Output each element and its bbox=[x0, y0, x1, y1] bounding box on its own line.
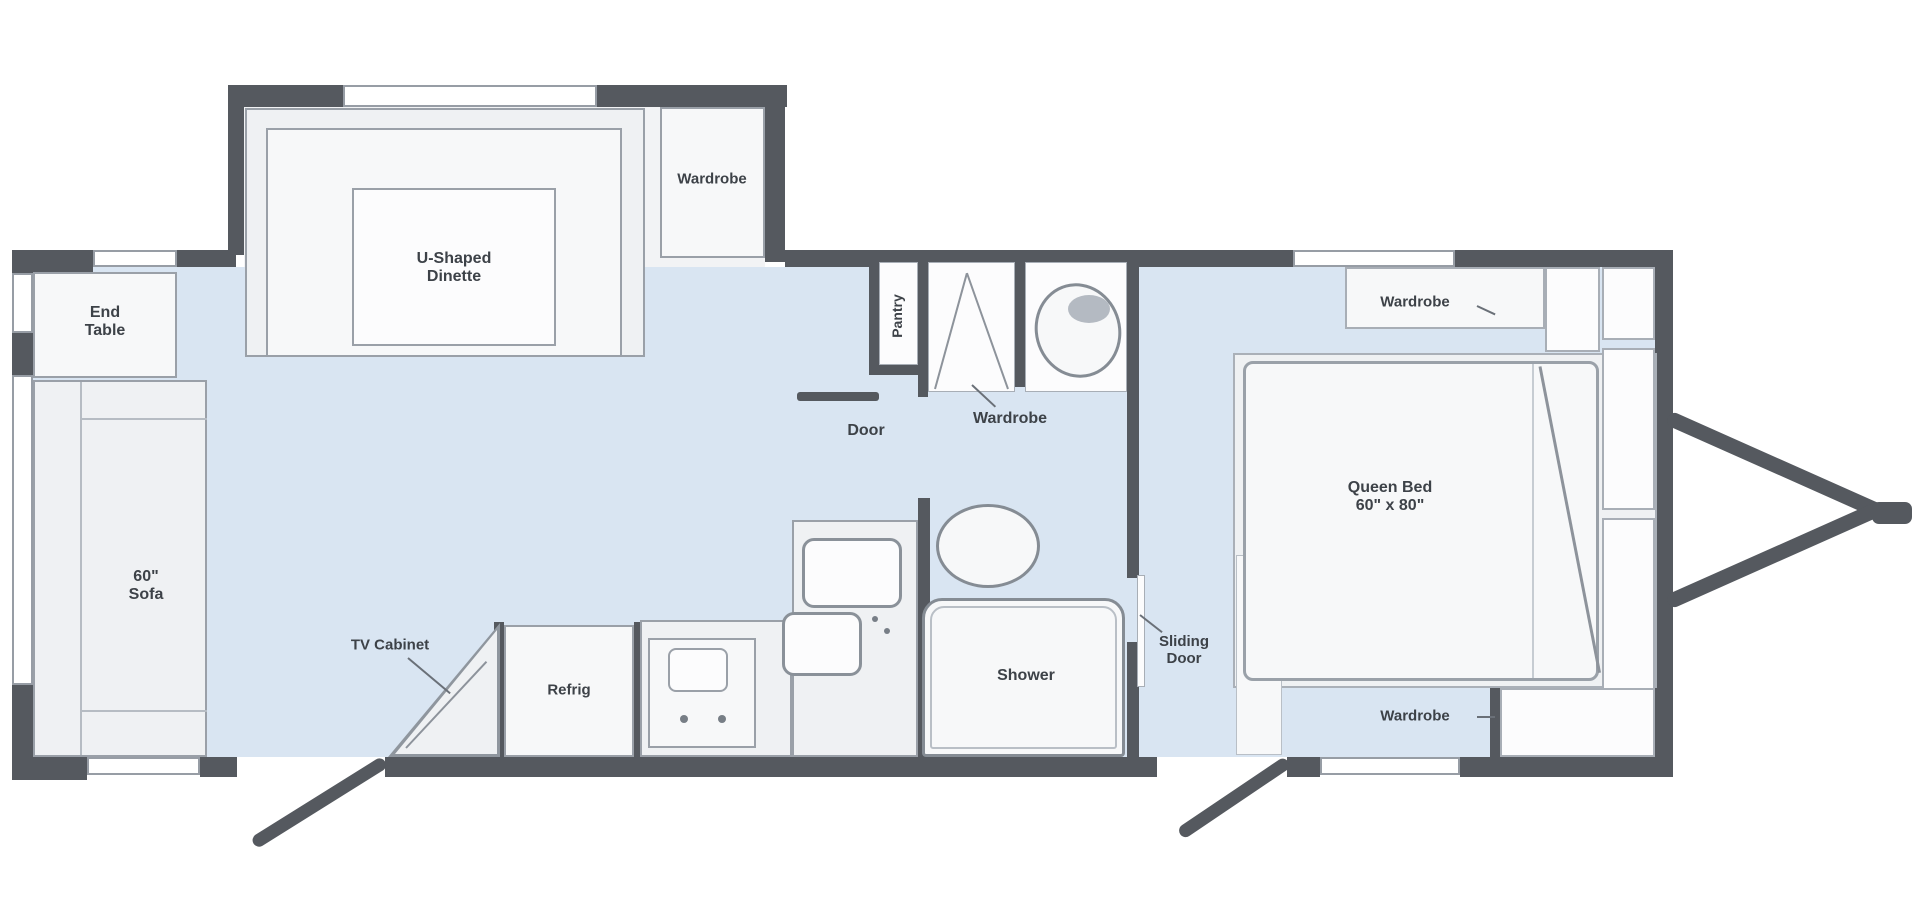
wall-bottom-long bbox=[385, 757, 1157, 777]
wall-top-left-corner bbox=[12, 250, 93, 273]
wall-top-right-corner bbox=[1455, 250, 1673, 267]
wall-bottom-right bbox=[1460, 757, 1673, 777]
entry-door-1 bbox=[250, 756, 388, 849]
bedside-shelf-2 bbox=[1602, 348, 1655, 510]
window-bottom-bed bbox=[1320, 757, 1460, 775]
label-wardrobe-mid: Wardrobe bbox=[973, 410, 1047, 428]
bedside-shelf-1 bbox=[1602, 267, 1655, 340]
kitchen-sink-bowl-lower bbox=[782, 612, 862, 676]
kitchen-faucet-dot-2 bbox=[884, 628, 890, 634]
wall-bottom-door1-jamb bbox=[200, 757, 237, 777]
floor-plan: End Table 60" Sofa U-Shaped Dinette Ward… bbox=[0, 0, 1920, 919]
wall-bath-bedroom-upper bbox=[1127, 255, 1139, 578]
sofa-armrest-top-line bbox=[80, 418, 207, 420]
bedside-cabinet-top bbox=[1545, 267, 1600, 352]
label-sofa: 60" Sofa bbox=[129, 568, 164, 604]
queen-bed-mattress bbox=[1243, 361, 1599, 681]
sofa-back-line bbox=[80, 382, 82, 755]
range-knob-right bbox=[718, 715, 726, 723]
wall-slide-left bbox=[228, 85, 244, 255]
kitchen-sink-bowl-upper bbox=[802, 538, 902, 608]
label-shower: Shower bbox=[997, 667, 1055, 685]
label-pantry: Pantry bbox=[890, 294, 906, 338]
wall-right-end bbox=[1655, 250, 1673, 777]
bath-door-panel bbox=[797, 392, 879, 401]
wall-closet-vanity bbox=[1015, 255, 1025, 387]
sofa-armrest-bottom-line bbox=[80, 710, 207, 712]
wall-bottom-door2-jamb bbox=[1287, 757, 1320, 777]
range-knob-left bbox=[680, 715, 688, 723]
window-bottom-sofa bbox=[87, 757, 200, 775]
entry-door-2 bbox=[1177, 756, 1292, 839]
window-top-left bbox=[93, 250, 177, 267]
wall-slide-top-right bbox=[597, 85, 787, 107]
label-dinette: U-Shaped Dinette bbox=[417, 250, 492, 286]
window-left-lower bbox=[12, 375, 33, 685]
sliding-door-panel bbox=[1137, 575, 1145, 687]
hitch-coupler bbox=[1872, 502, 1912, 524]
bed-sheet-fold-line bbox=[1532, 364, 1534, 678]
hitch-frame-upper bbox=[1665, 411, 1886, 520]
hitch-frame-lower bbox=[1665, 500, 1886, 609]
window-slide-top bbox=[343, 85, 597, 107]
wall-pantry-left bbox=[869, 262, 879, 375]
wall-bottom-left-corner bbox=[12, 755, 87, 780]
wall-pantry-closet bbox=[918, 255, 928, 397]
label-end-table: End Table bbox=[85, 304, 126, 340]
wall-wardrobe-br-left bbox=[1490, 688, 1500, 757]
wall-left-mid bbox=[12, 333, 33, 375]
window-top-right bbox=[1293, 250, 1455, 267]
label-sliding-door: Sliding Door bbox=[1159, 634, 1209, 668]
toilet bbox=[936, 504, 1040, 588]
range-burner bbox=[668, 648, 728, 692]
sofa bbox=[33, 380, 207, 757]
label-wardrobe-slide: Wardrobe bbox=[677, 172, 746, 189]
wall-slide-right bbox=[765, 85, 785, 262]
label-refrig: Refrig bbox=[547, 683, 590, 700]
label-queen-bed: Queen Bed 60" x 80" bbox=[1348, 479, 1432, 515]
wall-slide-top-left bbox=[228, 85, 343, 107]
kitchen-faucet-dot-1 bbox=[872, 616, 878, 622]
window-left-upper bbox=[12, 273, 33, 333]
bath-faucet bbox=[1068, 295, 1110, 323]
bedside-shelf-3 bbox=[1602, 518, 1655, 690]
label-tv-cabinet: TV Cabinet bbox=[351, 638, 429, 655]
label-wardrobe-bottom-right: Wardrobe bbox=[1380, 709, 1449, 726]
label-door: Door bbox=[847, 422, 884, 440]
label-wardrobe-top-right: Wardrobe bbox=[1380, 295, 1449, 312]
leader-wardrobe-bottom-right bbox=[1477, 716, 1495, 718]
wardrobe-bottom-right-cabinet bbox=[1500, 688, 1655, 757]
